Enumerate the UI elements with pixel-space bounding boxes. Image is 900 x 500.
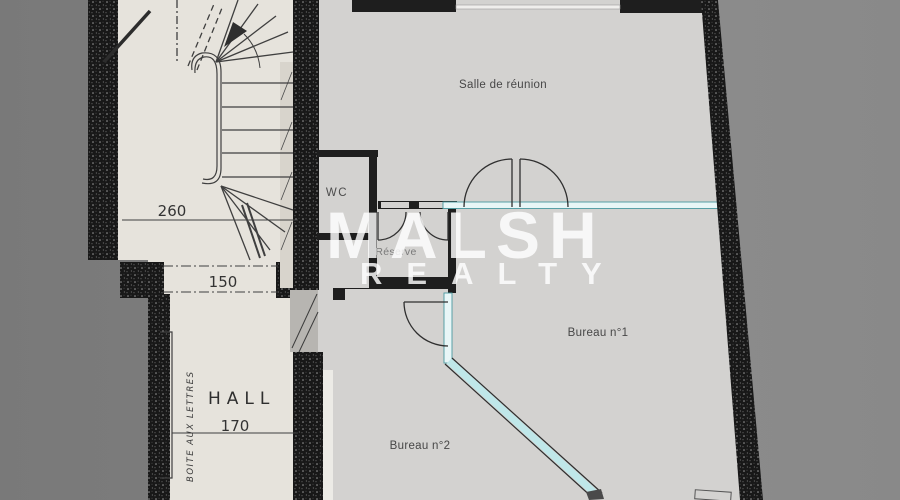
room-label-office2: Bureau n°2 [380, 440, 460, 452]
watermark-brand-sub: REALTY [360, 258, 626, 289]
room-label-office1: Bureau n°1 [558, 327, 638, 339]
dimension-170: 170 [211, 417, 259, 435]
room-label-hall: HALL [208, 389, 275, 409]
room-label-meeting: Salle de réunion [438, 79, 568, 91]
floorplan-image: Salle de réunion WC Réserve Bureau n°1 B… [0, 0, 900, 500]
dimension-150: 150 [199, 273, 247, 291]
mailbox-annotation: BOITE AUX LETTRES [186, 332, 199, 482]
dimension-260: 260 [146, 202, 198, 220]
